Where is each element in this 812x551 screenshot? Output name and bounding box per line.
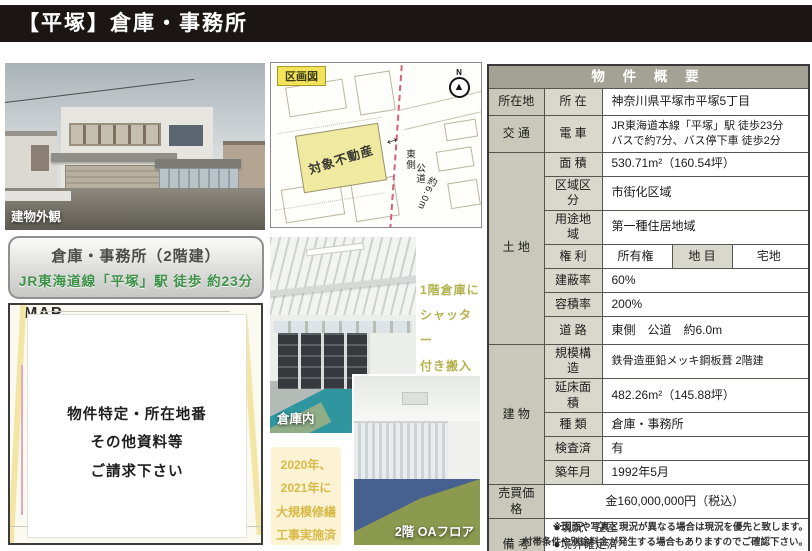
renovation-note-line-4: 工事実施済	[271, 524, 341, 547]
zoning-value: 市街化区域	[602, 176, 809, 210]
road-width-arrow-icon: ↔	[380, 127, 402, 151]
bcr-label: 建蔽率	[544, 268, 602, 292]
location-label: 所 在	[544, 88, 602, 115]
built-date-label: 築年月	[544, 461, 602, 485]
office-photo-label: 2階 OAフロア	[395, 521, 474, 540]
zoning-label: 区域区分	[544, 176, 602, 210]
fence-shape	[5, 191, 71, 201]
floor-area-label: 延床面積	[544, 379, 602, 413]
inspection-label: 検査済	[544, 437, 602, 461]
exterior-photo-label: 建物外観	[11, 206, 61, 225]
land-cat: 土 地	[488, 152, 544, 344]
overlay-line-3: ご請求下さい	[28, 458, 246, 486]
parcel-outline-shape	[436, 146, 475, 171]
floor-area-value: 482.26m²（145.88坪）	[602, 379, 809, 413]
parcel-outline-shape	[354, 70, 396, 115]
overlay-line-2: その他資料等	[28, 429, 246, 457]
footer-disclaimer: ※図面や写真と現況が異なる場合は現況を優先と致します。 付帯条件や別途料金が発生…	[523, 521, 808, 550]
road-label: 道 路	[544, 316, 602, 344]
bcr-value: 60%	[602, 268, 809, 292]
summary-box: 倉庫・事務所（2階建） JR東海道線「平塚」駅 徒歩 約23分	[8, 236, 264, 299]
land-area-value: 530.71m²（160.54坪）	[602, 152, 809, 176]
map-road-shape	[8, 303, 27, 545]
warehouse-photo-label: 倉庫内	[277, 408, 315, 427]
price-cat: 売買価格	[488, 485, 544, 519]
built-date-value: 1992年5月	[602, 461, 809, 485]
land-category-value: 宅地	[732, 244, 809, 268]
renovation-note: 2020年、 2021年に 大規模修繕 工事実施済	[271, 447, 341, 545]
map-road-shape	[40, 311, 230, 312]
building-cat: 建 物	[488, 344, 544, 484]
window-row-shape	[274, 321, 412, 333]
far-value: 200%	[602, 292, 809, 316]
access-label: 電 車	[544, 115, 602, 152]
flyer-page: 【平塚】倉庫・事務所 建物外観 倉庫・事務所（2階建） JR東海道線「平塚」駅 …	[0, 0, 812, 551]
left-house-window-shape	[31, 145, 49, 171]
access-value: JR東海道本線「平塚」駅 徒歩23分 バスで約7分、バス停下車 徒歩2分	[602, 115, 809, 152]
far-label: 容積率	[544, 292, 602, 316]
inspection-value: 有	[602, 437, 809, 461]
footer-line-1: ※図面や写真と現況が異なる場合は現況を優先と致します。	[523, 521, 808, 536]
compass-icon: N ▲	[447, 69, 471, 98]
subject-parcel-label: 対象不動産	[306, 139, 376, 178]
renovation-note-line-3: 大規模修繕	[271, 501, 341, 524]
property-overview-table: 物 件 概 要 所在地 所 在 神奈川県平塚市平塚5丁目 交 通 電 車 JR東…	[487, 64, 810, 551]
access-cat: 交 通	[488, 115, 544, 152]
renovation-note-line-1: 2020年、	[271, 454, 341, 477]
table-title: 物 件 概 要	[488, 65, 809, 88]
summary-access: JR東海道線「平塚」駅 徒歩 約23分	[10, 270, 262, 290]
structure-label: 規模構造	[544, 344, 602, 378]
footer-line-2: 付帯条件や別途料金が発生する場合もありますのでご確認下さい。	[523, 536, 808, 551]
location-map: MAP 物件特定・所在地番 その他資料等 ご請求下さい	[8, 303, 263, 545]
map-request-overlay: 物件特定・所在地番 その他資料等 ご請求下さい	[27, 314, 247, 538]
access-value-line2: バスで約7分、バス停下車 徒歩2分	[612, 134, 804, 149]
air-vent-shape	[402, 392, 428, 405]
parcel-outline-shape	[444, 119, 478, 142]
rights-value: 所有権	[602, 244, 672, 268]
structure-value: 鉄骨造亜鉛メッキ鋼板葺 2階建	[602, 344, 809, 378]
exterior-photo: 建物外観	[5, 63, 265, 230]
shutter-note-line-1: 1階倉庫に	[420, 278, 482, 303]
renovation-note-line-2: 2021年に	[271, 477, 341, 500]
price-value: 金160,000,000円（税込）	[544, 485, 809, 519]
entrance-roof-shape	[155, 159, 241, 168]
second-floor-windows-shape	[69, 123, 161, 146]
overlay-line-1: 物件特定・所在地番	[28, 401, 246, 429]
location-value: 神奈川県平塚市平塚5丁目	[602, 88, 809, 115]
summary-title: 倉庫・事務所（2階建）	[10, 245, 262, 266]
map-road-shape	[21, 365, 23, 515]
powerline-shape	[5, 79, 194, 104]
land-category-label: 地 目	[672, 244, 732, 268]
plot-map: 区画図 対象不動産 ↔ 東側 公道 約6.0m N ▲	[270, 62, 482, 228]
road-value: 東側 公道 約6.0m	[602, 316, 809, 344]
access-value-line1: JR東海道本線「平塚」駅 徒歩23分	[612, 119, 804, 134]
shutter-note-line-2: シャッター	[420, 303, 482, 353]
plot-map-tag: 区画図	[277, 66, 326, 86]
office-photo: 2階 OAフロア	[352, 374, 480, 545]
title-bar: 【平塚】倉庫・事務所	[0, 5, 812, 42]
compass-north-label: N	[447, 69, 471, 77]
building-type-value: 倉庫・事務所	[602, 413, 809, 437]
upper-window-shape	[169, 125, 203, 146]
use-district-label: 用途地域	[544, 210, 602, 244]
land-area-label: 面 積	[544, 152, 602, 176]
rights-label: 権 利	[544, 244, 602, 268]
window-blinds-shape	[354, 421, 450, 481]
wall-shape	[448, 421, 480, 481]
parcel-outline-shape	[447, 179, 481, 209]
use-district-value: 第一種住居地域	[602, 210, 809, 244]
compass-needle-icon: ▲	[449, 77, 470, 98]
building-type-label: 種 類	[544, 413, 602, 437]
location-cat: 所在地	[488, 88, 544, 115]
